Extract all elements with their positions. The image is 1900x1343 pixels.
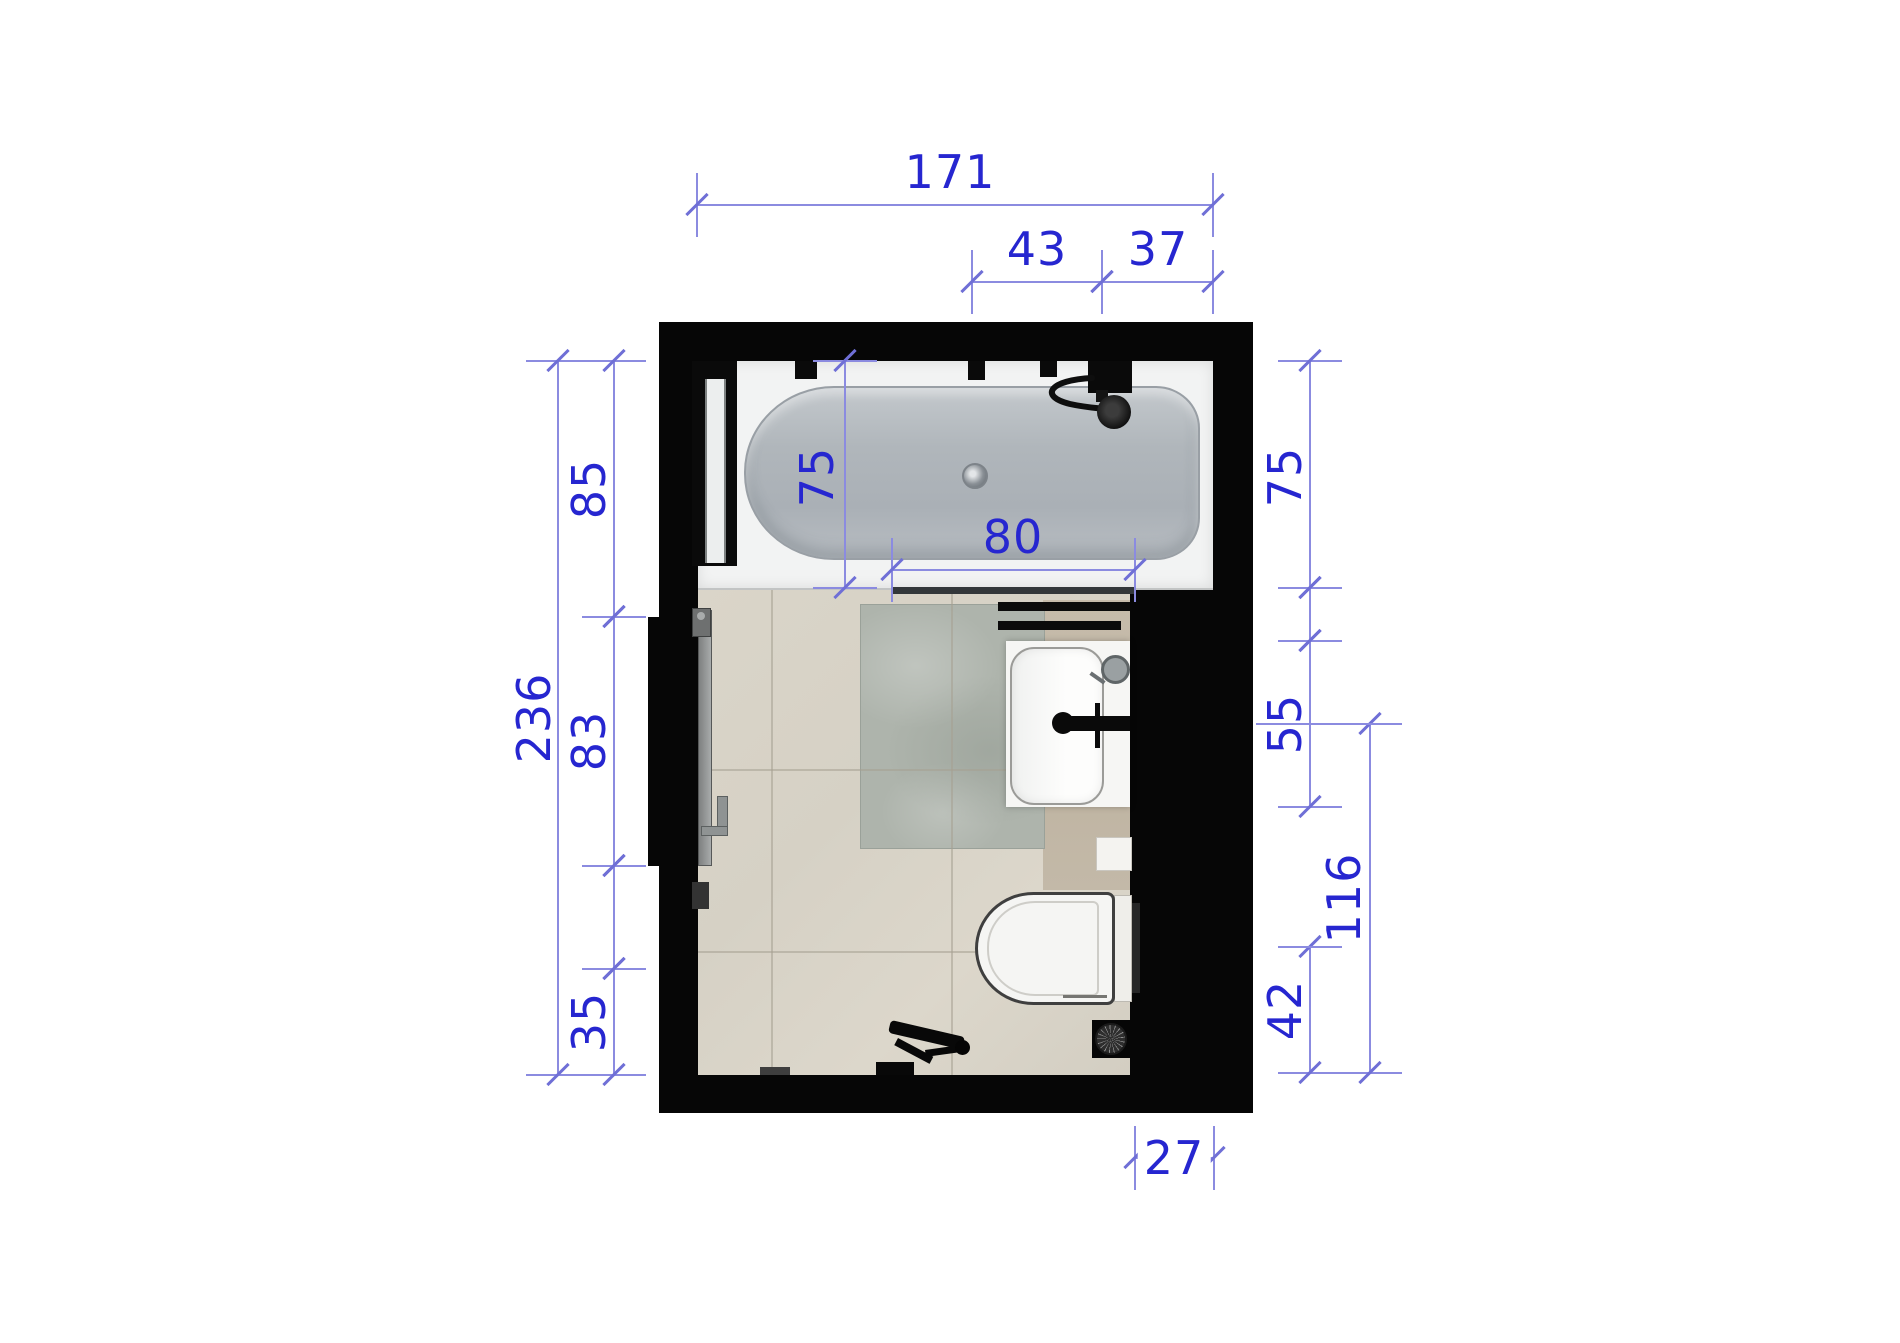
dimension-right-gap-span [1309,588,1311,641]
dimension-label-room-height: 236 [507,673,561,764]
dimension-label-shower-span: 43 [1007,222,1068,276]
dimension-mixer-to-wall [1102,281,1213,283]
dimension-label-bath-width-right: 75 [1258,447,1312,508]
dimension-witness-line [1282,946,1338,948]
dimension-label-bath-width-inner: 75 [790,447,844,508]
dimension-label-sink-axis-to-wall: 116 [1317,853,1371,944]
dimension-bath-width-inner [844,361,846,588]
dimension-bath-screen-length [892,569,1135,571]
dimension-label-mixer-to-wall: 37 [1128,222,1189,276]
dimension-label-bath-zone: 85 [562,459,616,520]
dimension-label-toilet-to-wall: 42 [1258,980,1312,1041]
dimension-label-left-bottom-span: 35 [562,992,616,1053]
dimension-room-width [697,204,1213,206]
dimension-label-niche-depth: 27 [1138,1131,1211,1185]
dimension-label-door-zone: 83 [562,711,616,772]
dimension-label-room-width: 171 [905,145,996,199]
dimension-shower-span [972,281,1102,283]
dimension-witness-line [1256,723,1392,725]
dimension-left-mid-span [613,866,615,969]
floor-plan-canvas: 1714337802723685833575755542116 [0,0,1900,1343]
dimension-layer: 1714337802723685833575755542116 [0,0,1900,1343]
dimension-label-bath-screen-length: 80 [983,510,1044,564]
